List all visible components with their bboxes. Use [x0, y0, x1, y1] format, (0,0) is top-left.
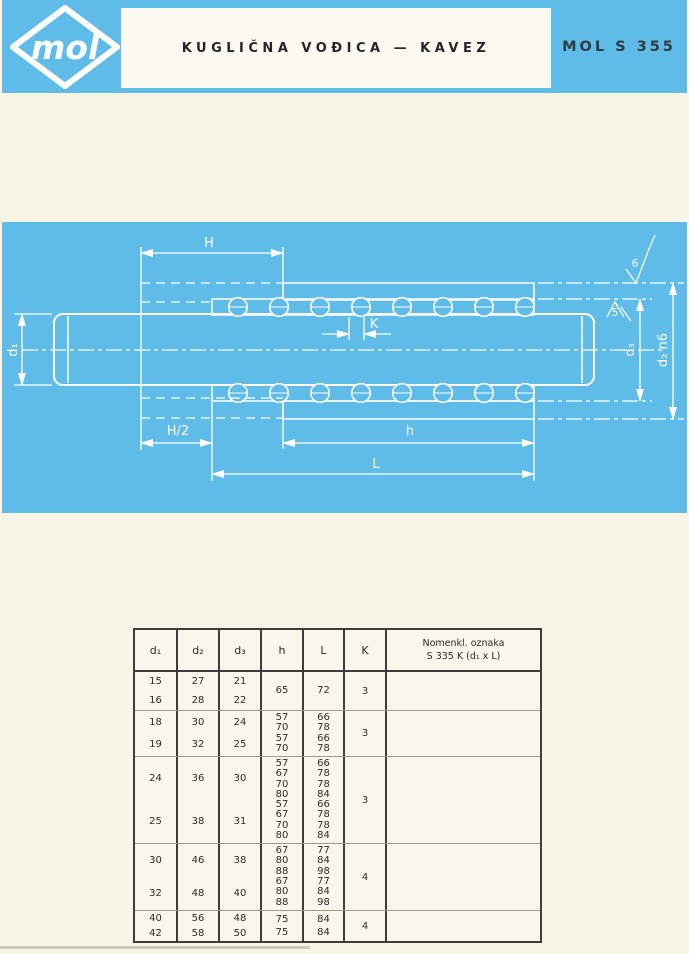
cell-value: 56	[178, 911, 218, 926]
table-cell: 678088678088	[262, 844, 304, 910]
cell-value: 50	[220, 926, 260, 941]
col-header-L: L	[304, 630, 345, 670]
col-header-d1: d₁	[135, 630, 178, 670]
cell-value: 78	[317, 810, 330, 820]
model-code: MOL S 355	[551, 0, 687, 93]
table-row: 2425363830315767708057677080667878846678…	[135, 756, 540, 843]
dim-label-d3: d₃	[623, 343, 638, 356]
cell-value: 36	[178, 757, 218, 800]
cell-value: 48	[178, 877, 218, 910]
sleeve-bottom	[283, 401, 534, 419]
cell-value: 84	[317, 928, 330, 938]
page-title: KUGLIČNA VOĐICA — KAVEZ	[182, 41, 491, 56]
cell-value: 80	[276, 831, 289, 841]
cell-value: 98	[317, 898, 330, 908]
cell-value-K: 3	[345, 711, 387, 756]
cell-value: 22	[220, 691, 260, 710]
table-cell: 778498778498	[304, 844, 345, 910]
col-header-nomenkl: Nomenkl. oznaka S 335 K (d₁ x L)	[387, 630, 540, 670]
drawing-panel: H H/2 h L d₁ d₃ d₂ n6 K 6 5	[2, 222, 687, 513]
cell-value: 65	[276, 686, 289, 696]
cell-value: 58	[178, 926, 218, 941]
cell-value: 80	[276, 887, 289, 897]
table-cell: 3032	[178, 711, 220, 756]
cell-value: 70	[276, 723, 289, 733]
dim-label-K: K	[370, 317, 379, 332]
col-header-K: K	[345, 630, 387, 670]
cell-value: 38	[220, 844, 260, 877]
cell-value: 72	[317, 686, 330, 696]
cell-value: 88	[276, 898, 289, 908]
cell-value: 75	[276, 928, 289, 938]
table-cell: 6678788466787884	[304, 757, 345, 843]
cell-value-K: 3	[345, 672, 387, 710]
cell-value: 40	[220, 877, 260, 910]
table-cell: 7575	[262, 911, 304, 941]
col-header-d2: d₂	[178, 630, 220, 670]
table-cell: 2728	[178, 672, 220, 710]
surface-finish-symbols: 6 5	[607, 235, 655, 321]
cell-value: 30	[220, 757, 260, 800]
cell-value: 78	[317, 744, 330, 754]
col-header-d3: d₃	[220, 630, 262, 670]
table-cell: 2425	[135, 757, 178, 843]
cell-value: 30	[135, 844, 176, 877]
dim-label-H2: H/2	[167, 424, 189, 439]
cell-value: 16	[135, 691, 176, 710]
cell-value: 25	[220, 734, 260, 757]
cell-value: 19	[135, 734, 176, 757]
cell-value: 28	[178, 691, 218, 710]
table-cell	[387, 911, 540, 941]
col-header-h: h	[262, 630, 304, 670]
dim-label-d1: d₁	[6, 343, 21, 356]
cell-value: 32	[135, 877, 176, 910]
logo-text: mol	[31, 28, 100, 67]
cell-value-K: 3	[345, 757, 387, 843]
table-cell: 4850	[220, 911, 262, 941]
cell-value: 48	[220, 911, 260, 926]
table-row: 404256584850757584844	[135, 910, 540, 941]
cell-value: 78	[317, 769, 330, 779]
cell-value: 84	[317, 831, 330, 841]
table-cell	[387, 711, 540, 756]
header-strip: mol KUGLIČNA VOĐICA — KAVEZ MOL S 355	[2, 0, 687, 93]
table-body: 1516272821226572318193032242557705770667…	[135, 672, 540, 941]
cell-value: 32	[178, 734, 218, 757]
cell-value: 84	[317, 856, 330, 866]
page: { "header": { "logo_text": "mol", "title…	[0, 0, 689, 954]
table-cell: 3840	[220, 844, 262, 910]
dim-label-H: H	[204, 236, 214, 251]
table-header-row: d₁ d₂ d₃ h L K Nomenkl. oznaka S 335 K (…	[135, 630, 540, 672]
cell-value: 80	[276, 856, 289, 866]
cell-value: 30	[178, 711, 218, 734]
spec-table: d₁ d₂ d₃ h L K Nomenkl. oznaka S 335 K (…	[133, 628, 542, 943]
table-cell: 4648	[178, 844, 220, 910]
table-cell: 2122	[220, 672, 262, 710]
surface-finish-5-icon	[607, 302, 631, 321]
table-cell: 2425	[220, 711, 262, 756]
table-cell: 65	[262, 672, 304, 710]
table-cell: 3032	[135, 844, 178, 910]
cell-value: 84	[317, 887, 330, 897]
cell-value: 31	[220, 800, 260, 843]
nomenkl-line1: Nomenkl. oznaka	[422, 637, 504, 650]
table-cell: 5767708057677080	[262, 757, 304, 843]
cell-value: 21	[220, 672, 260, 691]
nomenkl-line2: S 335 K (d₁ x L)	[427, 650, 501, 663]
table-cell: 5658	[178, 911, 220, 941]
mol-logo: mol	[10, 5, 120, 89]
table-cell: 66786678	[304, 711, 345, 756]
table-row: 15162728212265723	[135, 672, 540, 710]
cell-value: 84	[317, 915, 330, 925]
ball-guide-drawing: H H/2 h L d₁ d₃ d₂ n6 K 6 5	[2, 222, 687, 513]
table-cell	[387, 844, 540, 910]
extension-lines	[14, 247, 684, 481]
dim-label-d2: d₂ n6	[656, 333, 671, 367]
cell-value: 24	[135, 757, 176, 800]
table-cell: 3638	[178, 757, 220, 843]
cell-value: 40	[135, 911, 176, 926]
table-cell: 8484	[304, 911, 345, 941]
table-row: 18193032242557705770667866783	[135, 710, 540, 756]
cell-value: 15	[135, 672, 176, 691]
cell-value-K: 4	[345, 911, 387, 941]
title-box: KUGLIČNA VOĐICA — KAVEZ	[121, 8, 551, 88]
surface-finish-6-value: 6	[632, 258, 639, 270]
cell-value: 46	[178, 844, 218, 877]
scan-artifact-line	[0, 946, 310, 949]
cell-value: 67	[276, 769, 289, 779]
cell-value-K: 4	[345, 844, 387, 910]
cell-value: 78	[317, 723, 330, 733]
table-cell: 1516	[135, 672, 178, 710]
dim-label-h: h	[406, 424, 414, 439]
surface-finish-5-value: 5	[612, 307, 619, 319]
table-cell: 3031	[220, 757, 262, 843]
cell-value: 70	[276, 744, 289, 754]
cell-value: 27	[178, 672, 218, 691]
cell-value: 38	[178, 800, 218, 843]
table-cell	[387, 757, 540, 843]
cell-value: 67	[276, 810, 289, 820]
table-cell: 1819	[135, 711, 178, 756]
dimensions: H H/2 h L d₁ d₃ d₂ n6 K	[6, 236, 673, 474]
table-cell: 57705770	[262, 711, 304, 756]
table-cell	[387, 672, 540, 710]
table-cell: 72	[304, 672, 345, 710]
dim-label-L: L	[372, 457, 380, 472]
cell-value: 24	[220, 711, 260, 734]
cell-value: 25	[135, 800, 176, 843]
surface-finish-6-icon	[626, 235, 655, 283]
cell-value: 18	[135, 711, 176, 734]
cell-value: 75	[276, 915, 289, 925]
table-cell: 4042	[135, 911, 178, 941]
cell-value: 42	[135, 926, 176, 941]
table-row: 3032464838406780886780887784987784984	[135, 843, 540, 910]
